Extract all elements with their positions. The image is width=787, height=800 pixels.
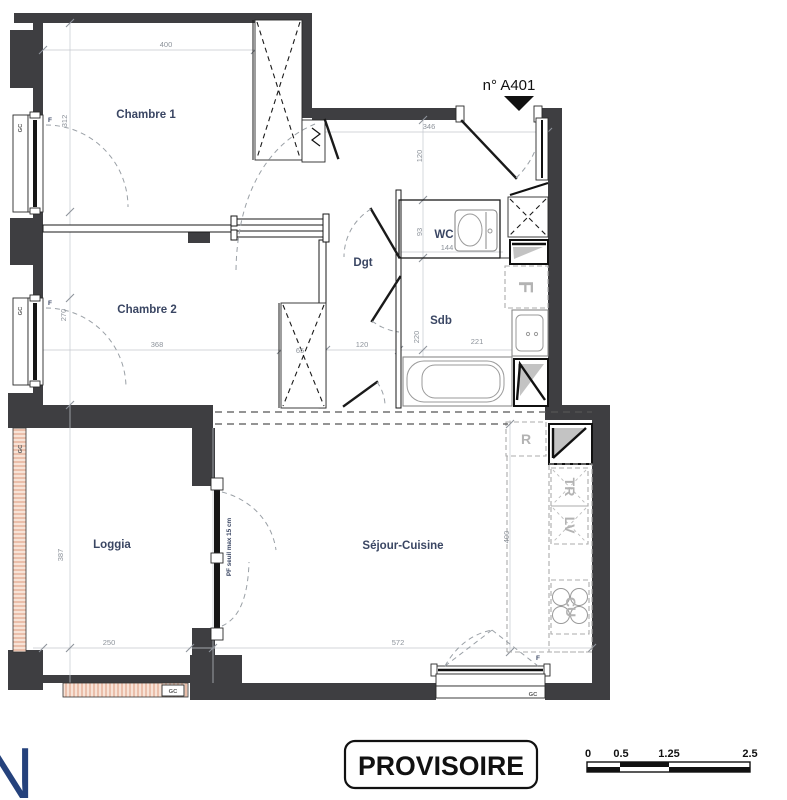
sejour-window: F GC xyxy=(431,630,550,698)
room-label-chambre1: Chambre 1 xyxy=(116,109,176,121)
provisoire-stamp: PROVISOIRE xyxy=(345,741,537,788)
unit-marker: n° A401 xyxy=(483,77,536,111)
svg-text:65: 65 xyxy=(296,346,304,355)
door-sejour xyxy=(344,382,385,406)
gc-label: GC xyxy=(18,444,24,454)
svg-text:368: 368 xyxy=(151,340,164,349)
logo: N xyxy=(0,734,34,800)
loggia-door: PF seuil max 15 cm xyxy=(211,478,276,640)
svg-text:2.5: 2.5 xyxy=(742,748,757,760)
svg-text:144: 144 xyxy=(441,243,454,252)
gc-label: GC xyxy=(18,123,24,133)
pf-label: PF seuil max 15 cm xyxy=(226,518,233,577)
tr-label: TR xyxy=(562,478,578,497)
svg-text:572: 572 xyxy=(392,638,405,647)
room-label-sejour: Séjour-Cuisine xyxy=(362,540,443,552)
room-label-sdb: Sdb xyxy=(430,315,452,327)
scale-bar: 0 0.5 1.25 2.5 xyxy=(585,748,758,772)
room-label-loggia: Loggia xyxy=(93,539,131,551)
gc-label: GC xyxy=(18,306,24,316)
r-label: R xyxy=(521,431,531,447)
svg-text:387: 387 xyxy=(56,549,65,562)
entry-niche xyxy=(302,120,338,162)
logo-letter: N xyxy=(0,734,34,800)
closet-chambre2 xyxy=(279,303,326,408)
svg-text:400: 400 xyxy=(502,531,511,544)
loggia-gc-bottom: GC xyxy=(63,683,188,697)
window-chambre2: GC F xyxy=(13,295,126,388)
svg-text:312: 312 xyxy=(60,115,69,128)
f-label: F xyxy=(48,300,52,307)
floor-plan-svg: GC F GC F xyxy=(0,0,787,800)
entry-closet xyxy=(508,183,548,237)
duct-sdb xyxy=(514,359,548,406)
window-chambre1: GC F xyxy=(13,112,128,214)
duct-entry xyxy=(510,240,548,264)
entry-marker-icon xyxy=(504,96,534,111)
washbasin xyxy=(512,310,548,356)
room-label-chambre2: Chambre 2 xyxy=(117,304,176,316)
room-label-wc: WC xyxy=(434,229,453,241)
svg-text:93: 93 xyxy=(415,228,424,236)
stamp-label: PROVISOIRE xyxy=(358,751,524,781)
duct-kitchen xyxy=(549,424,592,464)
fridge-box: F xyxy=(505,266,548,308)
svg-text:0.5: 0.5 xyxy=(613,748,628,760)
svg-text:120: 120 xyxy=(356,340,369,349)
svg-text:270: 270 xyxy=(59,309,68,322)
svg-text:250: 250 xyxy=(103,638,116,647)
lv-label: LV xyxy=(562,517,578,535)
door-wc xyxy=(344,209,399,257)
sliding-door xyxy=(231,214,329,242)
svg-text:1.25: 1.25 xyxy=(658,748,679,760)
closet-chambre1 xyxy=(253,20,302,160)
open-boundary xyxy=(215,412,592,424)
svg-text:346: 346 xyxy=(423,122,436,131)
toilet xyxy=(455,210,497,251)
loggia-gc-left: GC xyxy=(13,428,26,652)
svg-text:220: 220 xyxy=(412,331,421,344)
f-label: F xyxy=(536,655,540,662)
svg-text:0: 0 xyxy=(585,748,591,760)
svg-text:221: 221 xyxy=(471,337,484,346)
fridge-label: F xyxy=(514,281,536,293)
gc-label: GC xyxy=(529,692,539,698)
f-label: F xyxy=(48,117,52,124)
svg-text:120: 120 xyxy=(415,150,424,163)
gc-label: GC xyxy=(169,689,179,695)
unit-number: n° A401 xyxy=(483,77,536,94)
entry-door xyxy=(456,106,548,180)
svg-text:400: 400 xyxy=(160,40,173,49)
bathtub xyxy=(403,357,512,406)
room-label-dgt: Dgt xyxy=(353,257,372,269)
cu-label: CU xyxy=(563,597,579,617)
